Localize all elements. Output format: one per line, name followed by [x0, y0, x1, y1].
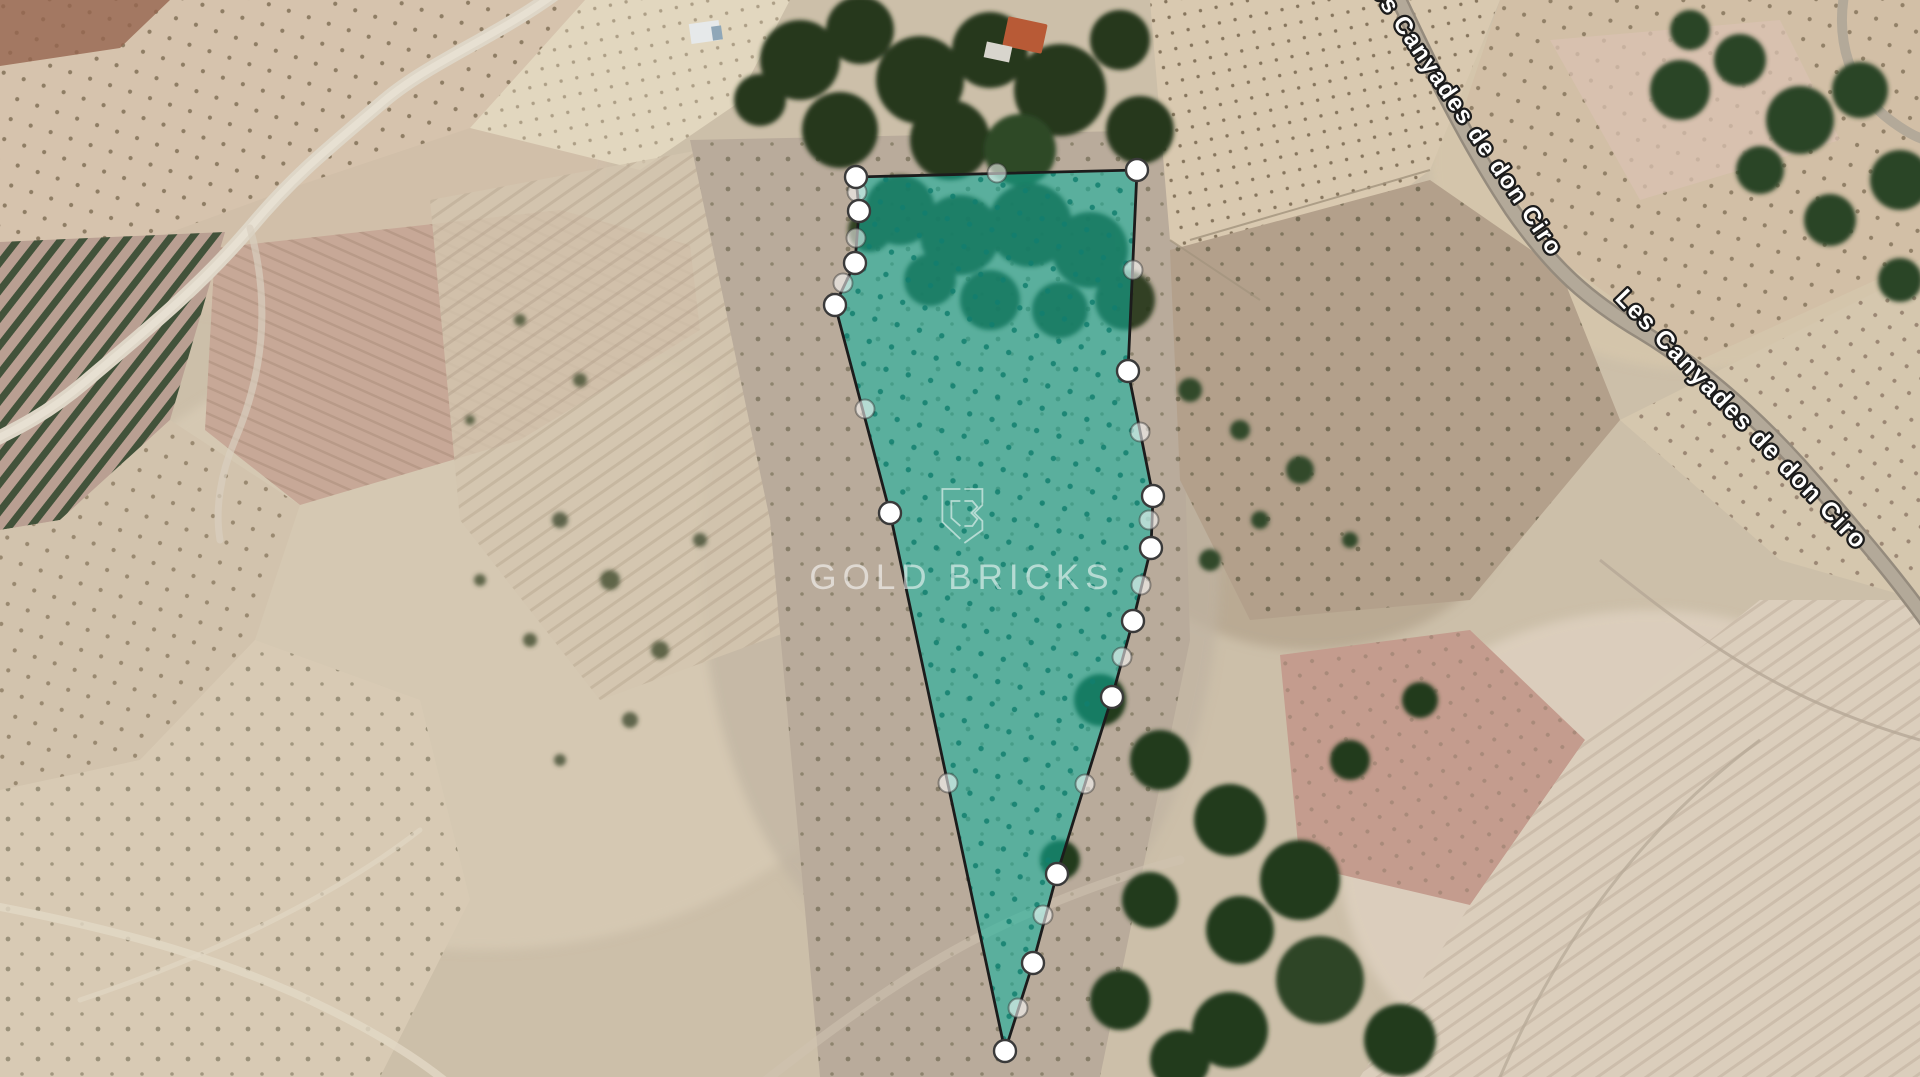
parcel-vertex-handle[interactable] — [845, 166, 867, 188]
parcel-midpoint-handle[interactable] — [847, 229, 866, 248]
parcel-midpoint-handle[interactable] — [1124, 261, 1143, 280]
map-canvas[interactable]: Les Canyades de don Ciro Les Canyades de… — [0, 0, 1920, 1077]
parcel-midpoint-handle[interactable] — [1034, 906, 1053, 925]
parcel-midpoint-handle[interactable] — [1076, 775, 1095, 794]
parcel-midpoint-handle[interactable] — [1009, 999, 1028, 1018]
parcel-vertex-handle[interactable] — [1117, 360, 1139, 382]
road-label-lower: Les Canyades de don Ciro — [1610, 284, 1873, 555]
parcel-vertex-handle[interactable] — [1046, 863, 1068, 885]
parcel-vertex-handle[interactable] — [1122, 610, 1144, 632]
parcel-vertex-handle[interactable] — [848, 200, 870, 222]
parcel-vertex-handle[interactable] — [879, 502, 901, 524]
parcel-midpoint-handle[interactable] — [1140, 511, 1159, 530]
parcel-vertex-handle[interactable] — [1142, 485, 1164, 507]
parcel-vertex-handle[interactable] — [1126, 159, 1148, 181]
parcel-vertex-handle[interactable] — [1101, 686, 1123, 708]
parcel-vertex-handle[interactable] — [1022, 952, 1044, 974]
parcel-midpoint-handle[interactable] — [1113, 648, 1132, 667]
parcel-midpoint-handle[interactable] — [1132, 576, 1151, 595]
parcel-midpoint-handle[interactable] — [939, 774, 958, 793]
parcel-midpoint-handle[interactable] — [988, 164, 1007, 183]
parcel-vertex-handle[interactable] — [1140, 537, 1162, 559]
parcel-vertex-handle[interactable] — [824, 294, 846, 316]
road-label-top: Les Canyades de don Ciro — [1357, 0, 1568, 261]
parcel-vertex-handle[interactable] — [994, 1040, 1016, 1062]
parcel-midpoint-handle[interactable] — [856, 400, 875, 419]
parcel-midpoint-handle[interactable] — [1131, 423, 1150, 442]
parcel-vertex-handle[interactable] — [844, 252, 866, 274]
parcel-overlay: Les Canyades de don Ciro Les Canyades de… — [0, 0, 1920, 1077]
parcel-midpoint-handle[interactable] — [834, 274, 853, 293]
